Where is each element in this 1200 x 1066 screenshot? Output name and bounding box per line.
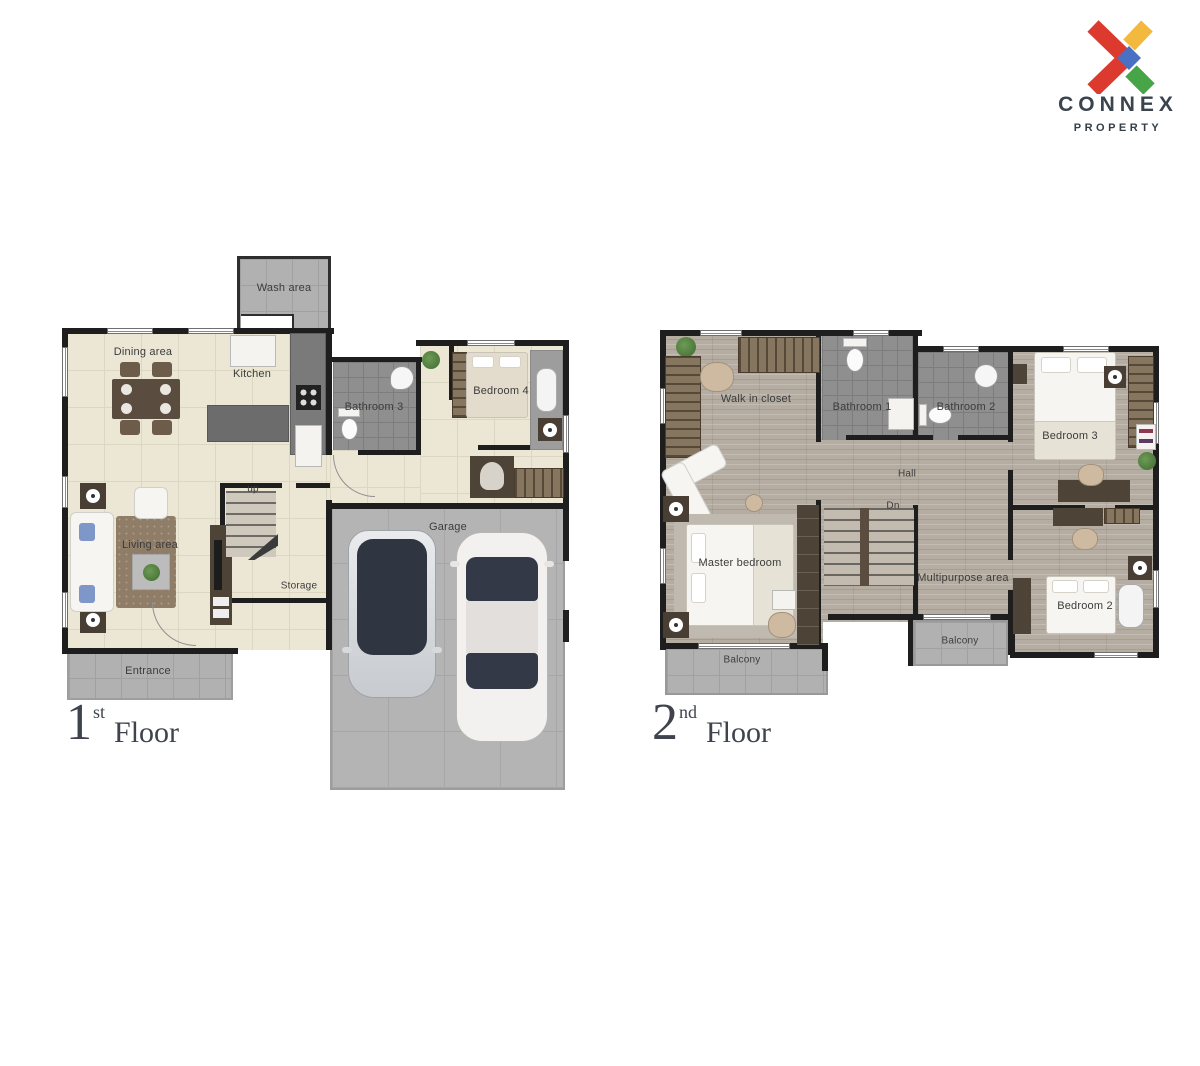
label-bathroom1: Bathroom 1 xyxy=(833,401,892,413)
nightstand xyxy=(1013,364,1027,384)
toilet-tank xyxy=(919,404,927,426)
closet-run-left xyxy=(665,356,701,458)
master-bed xyxy=(686,524,794,626)
duvet-fold xyxy=(753,525,793,625)
label-master-bedroom: Master bedroom xyxy=(699,557,782,569)
lamp xyxy=(669,618,683,632)
wall xyxy=(822,643,828,671)
pillow xyxy=(691,573,706,603)
label-multipurpose-area: Multipurpose area xyxy=(917,572,1008,584)
wall xyxy=(846,435,918,440)
pillow xyxy=(1052,580,1078,593)
master-wardrobe xyxy=(797,505,819,645)
bathroom2-room xyxy=(918,352,1008,440)
floor2-word: Floor xyxy=(706,716,771,750)
floor2-number: 2 xyxy=(652,700,678,747)
wall xyxy=(908,614,913,666)
pillow xyxy=(1083,580,1109,593)
bath2-sink xyxy=(974,364,998,388)
label-master-balcony: Balcony xyxy=(724,655,761,666)
window xyxy=(660,548,666,584)
label-walk-in-closet: Walk in closet xyxy=(721,393,791,405)
wall xyxy=(958,435,1013,440)
label-hall: Hall xyxy=(898,469,916,480)
desk2 xyxy=(1053,508,1103,526)
bench xyxy=(1118,584,1144,628)
pillow xyxy=(1077,357,1107,373)
desk-chair xyxy=(1078,464,1104,486)
vanity-chair xyxy=(768,612,796,638)
window xyxy=(700,330,742,336)
window xyxy=(1153,570,1159,608)
stair-rail xyxy=(860,508,869,586)
wardrobe2 xyxy=(1104,508,1140,524)
floor2-plan: Walk in closet Bathroom 1 Bathroom 2 Bed… xyxy=(0,0,1200,1066)
shelf-item xyxy=(1139,439,1153,443)
side-wardrobe xyxy=(1013,578,1031,634)
window xyxy=(853,330,889,336)
sliding-door xyxy=(698,643,790,649)
plant xyxy=(1138,452,1156,470)
staircase-down xyxy=(824,508,914,586)
wall xyxy=(913,435,933,440)
nightstand xyxy=(663,496,689,522)
vanity-table xyxy=(772,590,796,610)
lamp xyxy=(669,502,683,516)
window xyxy=(1094,652,1138,658)
nightstand xyxy=(1104,366,1126,388)
nightstand xyxy=(663,612,689,638)
sliding-door xyxy=(923,614,991,620)
mask xyxy=(823,622,915,647)
toilet-bowl xyxy=(846,348,864,372)
shelf-item xyxy=(1139,429,1153,433)
wall xyxy=(1008,505,1013,560)
lamp xyxy=(1133,561,1147,575)
bath-vanity xyxy=(888,398,914,430)
label-center-balcony: Balcony xyxy=(942,636,979,647)
toilet-tank xyxy=(843,338,867,347)
label-bedroom2: Bedroom 2 xyxy=(1057,600,1113,612)
dressing-chair xyxy=(700,362,734,392)
window xyxy=(943,346,979,352)
floor2-ordinal: nd xyxy=(679,702,697,723)
side-table xyxy=(745,494,763,512)
pillow xyxy=(1041,357,1071,373)
label-bedroom3: Bedroom 3 xyxy=(1042,430,1098,442)
lamp xyxy=(1108,370,1122,384)
label-dn: Dn xyxy=(886,501,899,512)
desk-chair xyxy=(1072,528,1098,550)
closet-run-top xyxy=(738,337,820,373)
shelf xyxy=(1136,424,1156,450)
plant xyxy=(676,337,696,357)
wall xyxy=(1008,470,1013,510)
floor2-title: 2 nd Floor xyxy=(652,700,771,750)
nightstand xyxy=(1128,556,1152,580)
label-bathroom2: Bathroom 2 xyxy=(937,401,996,413)
